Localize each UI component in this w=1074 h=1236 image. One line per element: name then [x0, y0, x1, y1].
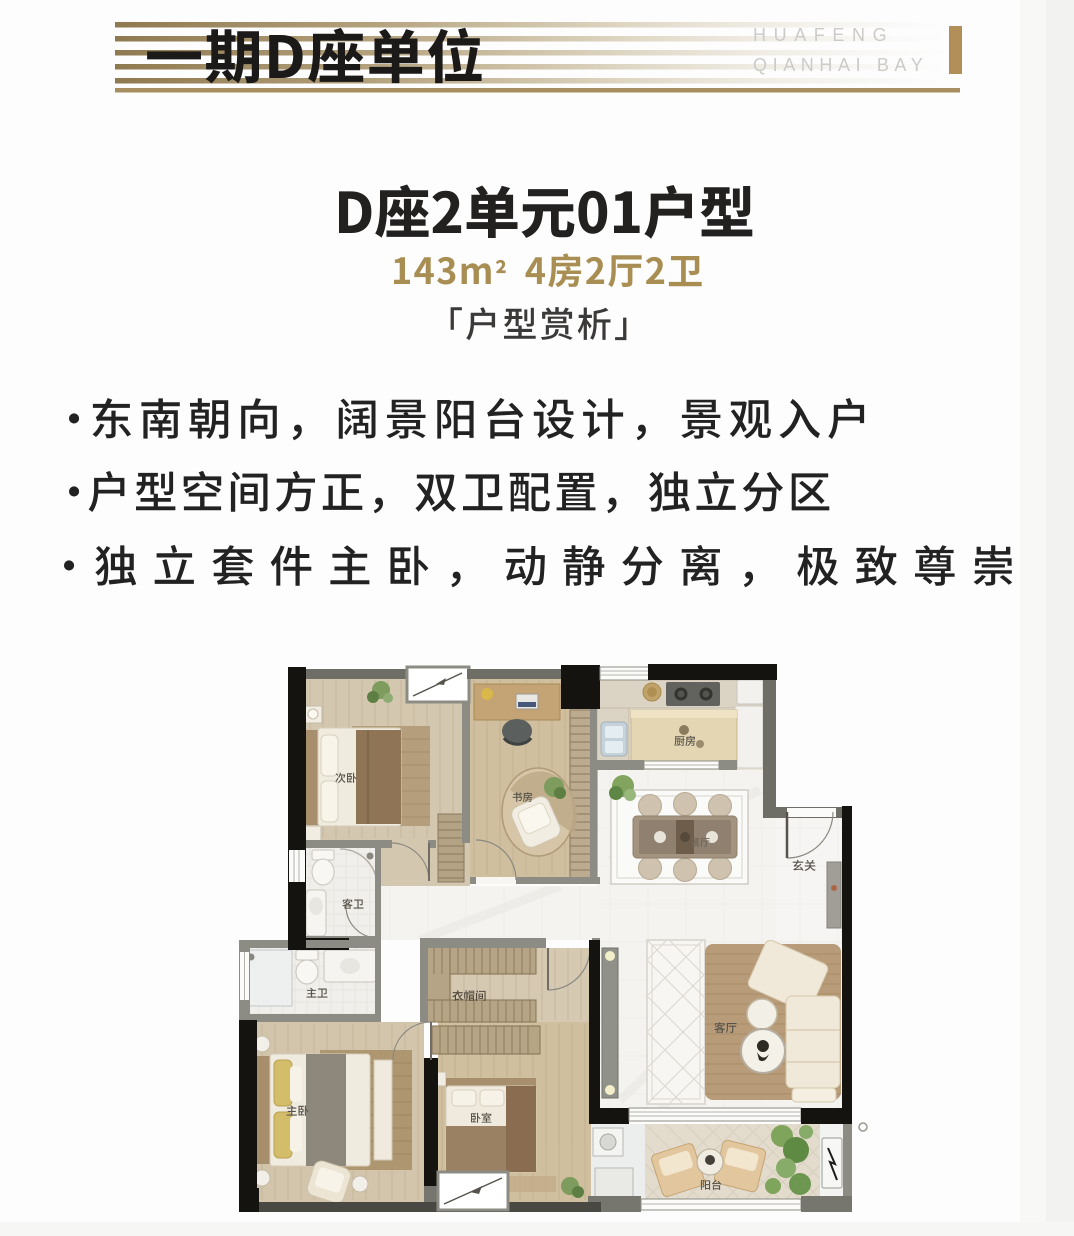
svg-text:HUAFENG: HUAFENG: [753, 25, 894, 45]
svg-text:QIANHAI BAY: QIANHAI BAY: [753, 55, 928, 75]
